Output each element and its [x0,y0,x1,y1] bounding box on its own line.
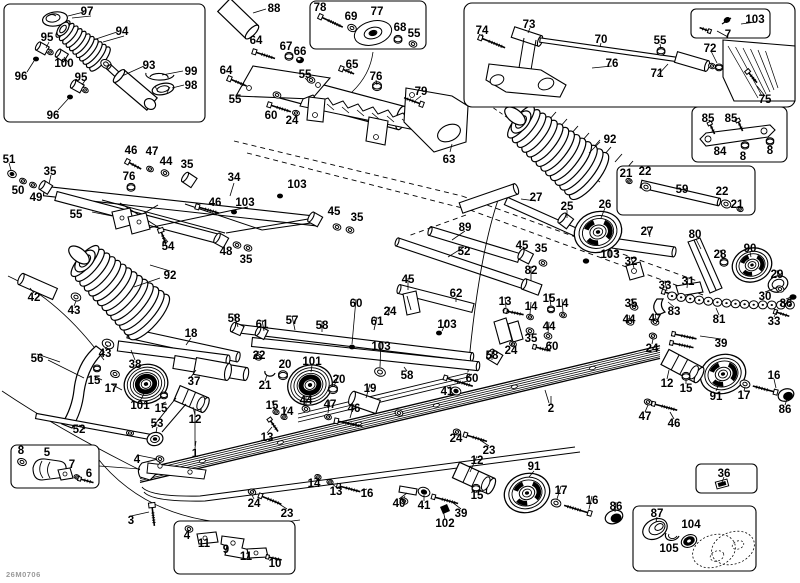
svg-text:20: 20 [333,374,346,386]
svg-text:29: 29 [771,269,784,281]
svg-text:43: 43 [68,305,81,317]
svg-text:103: 103 [600,249,619,261]
svg-text:61: 61 [371,316,384,328]
svg-text:47: 47 [146,146,159,158]
svg-text:65: 65 [346,59,359,71]
svg-text:23: 23 [281,508,294,520]
svg-text:54: 54 [162,241,175,253]
svg-text:46: 46 [668,418,681,430]
svg-text:40: 40 [393,498,406,510]
svg-text:44: 44 [300,395,313,407]
svg-text:17: 17 [555,485,568,497]
svg-text:36: 36 [718,468,731,480]
svg-text:92: 92 [604,134,617,146]
svg-text:14: 14 [308,478,321,490]
svg-text:15: 15 [266,400,279,412]
svg-text:37: 37 [188,376,201,388]
svg-text:103: 103 [287,179,306,191]
svg-text:15: 15 [680,383,693,395]
svg-text:30: 30 [759,291,772,303]
svg-text:100: 100 [54,58,73,70]
svg-text:26M0706: 26M0706 [6,570,41,578]
svg-text:25: 25 [561,201,574,213]
svg-text:55: 55 [299,69,312,81]
svg-text:96: 96 [47,110,60,122]
svg-text:21: 21 [259,380,272,392]
svg-text:13: 13 [330,486,343,498]
svg-text:52: 52 [73,424,86,436]
svg-text:35: 35 [181,159,194,171]
svg-text:89: 89 [459,222,472,234]
svg-text:44: 44 [623,314,636,326]
svg-text:48: 48 [220,246,233,258]
svg-text:7: 7 [725,29,731,41]
svg-text:6: 6 [86,468,92,480]
svg-text:63: 63 [443,154,456,166]
svg-text:68: 68 [394,22,407,34]
svg-text:69: 69 [345,11,358,23]
svg-text:56: 56 [31,353,44,365]
svg-text:15: 15 [543,293,556,305]
svg-text:24: 24 [286,115,299,127]
svg-text:22: 22 [716,186,729,198]
svg-text:20: 20 [279,359,292,371]
svg-text:87: 87 [651,508,664,520]
svg-text:10: 10 [269,558,282,570]
svg-text:55: 55 [654,35,667,47]
svg-text:103: 103 [235,197,254,209]
svg-text:101: 101 [130,400,150,412]
svg-text:80: 80 [689,229,702,241]
svg-text:14: 14 [525,301,538,313]
svg-text:46: 46 [209,197,222,209]
svg-text:35: 35 [240,254,253,266]
svg-text:50: 50 [12,185,25,197]
svg-text:99: 99 [185,66,198,78]
svg-text:45: 45 [328,206,341,218]
svg-text:44: 44 [160,156,173,168]
svg-text:47: 47 [649,313,662,325]
svg-text:8: 8 [18,445,25,457]
svg-text:82: 82 [525,265,538,277]
svg-text:23: 23 [483,445,496,457]
svg-text:11: 11 [198,538,211,550]
svg-text:95: 95 [75,72,88,84]
svg-text:52: 52 [458,246,471,258]
svg-text:44: 44 [543,321,556,333]
svg-text:102: 102 [435,518,454,530]
svg-text:96: 96 [15,71,28,83]
svg-text:1: 1 [192,448,199,460]
svg-text:28: 28 [714,249,727,261]
svg-text:31: 31 [682,276,695,288]
svg-text:88: 88 [268,3,281,15]
svg-text:91: 91 [710,391,723,403]
svg-text:38: 38 [129,359,142,371]
svg-text:12: 12 [661,378,674,390]
svg-text:77: 77 [371,6,384,18]
svg-text:46: 46 [348,403,361,415]
svg-text:24: 24 [646,343,659,355]
svg-text:14: 14 [556,298,569,310]
svg-text:79: 79 [415,86,428,98]
svg-text:104: 104 [681,519,701,531]
svg-text:13: 13 [261,432,274,444]
svg-text:53: 53 [151,418,164,430]
svg-text:46: 46 [125,145,138,157]
svg-text:13: 13 [499,296,512,308]
svg-text:73: 73 [523,19,536,31]
svg-text:11: 11 [240,551,253,563]
svg-text:41: 41 [418,500,431,512]
svg-text:24: 24 [248,498,261,510]
svg-text:70: 70 [595,34,608,46]
svg-text:39: 39 [455,508,468,520]
svg-text:75: 75 [759,94,772,106]
svg-text:45: 45 [402,274,415,286]
svg-text:47: 47 [639,411,652,423]
svg-text:16: 16 [586,495,599,507]
svg-text:39: 39 [715,338,728,350]
svg-text:22: 22 [253,350,266,362]
svg-text:45: 45 [516,240,529,252]
svg-text:27: 27 [530,192,543,204]
svg-text:64: 64 [220,65,233,77]
svg-text:60: 60 [466,373,479,385]
svg-text:55: 55 [408,28,421,40]
svg-text:59: 59 [676,184,689,196]
svg-text:35: 35 [535,243,548,255]
svg-text:95: 95 [41,32,54,44]
svg-text:47: 47 [324,399,337,411]
svg-text:66: 66 [294,46,307,58]
svg-text:86: 86 [779,404,792,416]
svg-text:71: 71 [651,68,664,80]
svg-text:42: 42 [28,292,41,304]
svg-text:3: 3 [128,515,134,527]
svg-text:74: 74 [476,25,489,37]
svg-text:7: 7 [69,459,75,471]
svg-text:16: 16 [361,488,374,500]
svg-text:41: 41 [441,386,454,398]
svg-text:14: 14 [281,406,294,418]
svg-text:35: 35 [525,333,538,345]
svg-text:93: 93 [143,60,156,72]
svg-text:15: 15 [155,403,168,415]
svg-text:9: 9 [223,544,229,556]
svg-text:64: 64 [250,35,263,47]
svg-text:15: 15 [471,490,484,502]
svg-text:55: 55 [229,94,242,106]
svg-text:17: 17 [738,390,751,402]
svg-text:12: 12 [471,455,484,467]
svg-text:4: 4 [134,454,141,466]
svg-text:61: 61 [256,319,269,331]
svg-text:57: 57 [286,315,299,327]
svg-text:24: 24 [384,306,397,318]
svg-text:35: 35 [44,166,57,178]
svg-text:94: 94 [116,26,129,38]
svg-text:58: 58 [316,320,329,332]
svg-text:8: 8 [767,145,774,157]
svg-text:55: 55 [70,209,83,221]
svg-text:72: 72 [704,43,717,55]
svg-text:97: 97 [81,6,94,18]
svg-text:85: 85 [725,113,738,125]
svg-text:16: 16 [768,370,781,382]
svg-text:91: 91 [528,461,541,473]
svg-text:24: 24 [450,433,463,445]
svg-text:60: 60 [546,341,559,353]
svg-text:60: 60 [265,110,278,122]
svg-text:12: 12 [189,414,202,426]
svg-text:85: 85 [702,113,715,125]
svg-text:76: 76 [123,171,136,183]
svg-text:51: 51 [3,154,16,166]
svg-text:21: 21 [620,168,633,180]
svg-text:76: 76 [606,58,619,70]
svg-text:81: 81 [713,314,726,326]
svg-text:26: 26 [599,199,612,211]
svg-text:86: 86 [610,501,623,513]
svg-text:18: 18 [185,328,198,340]
svg-text:2: 2 [548,403,554,415]
svg-text:58: 58 [228,313,241,325]
svg-text:105: 105 [659,543,679,555]
svg-text:35: 35 [351,212,364,224]
svg-text:17: 17 [105,383,118,395]
svg-text:24: 24 [505,345,518,357]
svg-text:19: 19 [364,383,377,395]
svg-text:27: 27 [641,226,654,238]
svg-text:103: 103 [437,319,456,331]
svg-text:84: 84 [714,146,727,158]
svg-text:67: 67 [280,41,293,53]
svg-text:101: 101 [302,356,322,368]
svg-text:86: 86 [780,298,793,310]
svg-text:15: 15 [88,375,101,387]
svg-text:60: 60 [350,298,363,310]
svg-text:32: 32 [625,256,638,268]
svg-text:92: 92 [164,270,177,282]
svg-text:4: 4 [184,530,191,542]
svg-text:103: 103 [745,14,764,26]
svg-text:76: 76 [370,71,383,83]
svg-text:62: 62 [450,288,463,300]
svg-text:21: 21 [731,199,744,211]
svg-text:58: 58 [486,350,499,362]
svg-text:33: 33 [659,280,672,292]
svg-text:98: 98 [185,80,198,92]
svg-text:90: 90 [744,243,757,255]
svg-text:5: 5 [44,447,51,459]
svg-text:78: 78 [314,2,327,14]
svg-text:35: 35 [625,298,638,310]
svg-text:43: 43 [99,348,112,360]
svg-text:22: 22 [639,166,652,178]
svg-text:8: 8 [740,151,747,163]
svg-text:49: 49 [30,192,43,204]
svg-text:83: 83 [668,306,681,318]
svg-text:58: 58 [401,370,414,382]
svg-text:103: 103 [371,341,390,353]
svg-text:33: 33 [768,316,781,328]
svg-text:34: 34 [228,172,241,184]
